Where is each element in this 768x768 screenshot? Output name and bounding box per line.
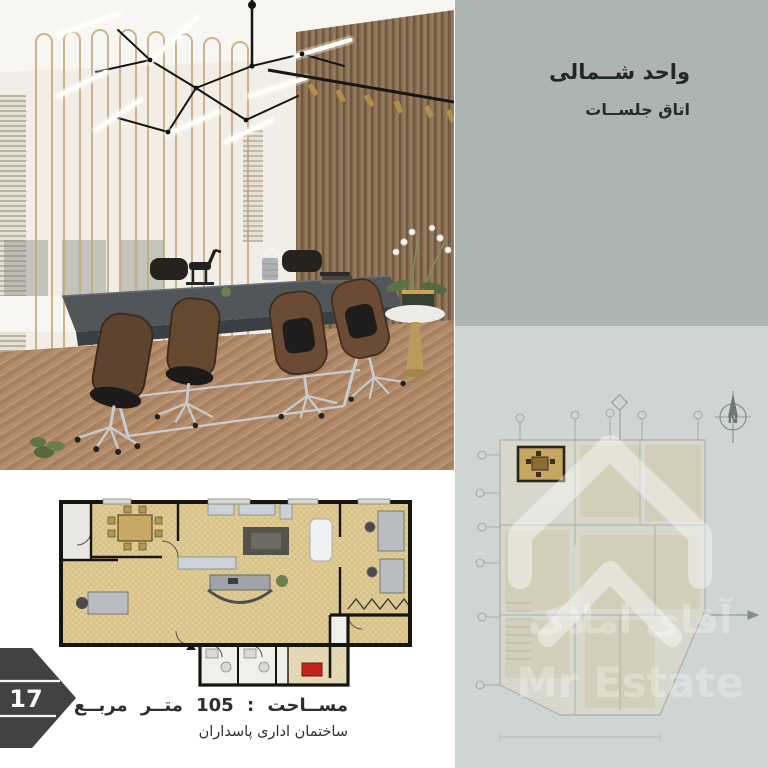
highlighted-meeting-room	[518, 447, 564, 481]
table-greenery	[221, 287, 231, 297]
building-floor-plan: N آقای املاک Mr Estate	[470, 385, 768, 768]
daybed	[310, 519, 332, 561]
compass-north-label: N	[728, 412, 739, 427]
vestibule-floor	[61, 502, 91, 560]
watermark-text-en: Mr Estate	[516, 658, 744, 707]
wall-art-panels	[4, 240, 164, 298]
building-caption: ساختمان اداری پاسداران	[70, 724, 348, 740]
chair-back-far-2	[282, 250, 322, 272]
axis-marker	[612, 395, 628, 440]
bench-sofa	[178, 557, 236, 569]
watermark-text-fa: آقای املاک	[528, 596, 734, 642]
page-number: 17	[9, 685, 42, 713]
room-subtitle: اتاق جلســات	[585, 100, 690, 119]
meeting-room-photo	[0, 0, 454, 470]
window-blinds-mid	[243, 130, 263, 242]
chair-back-far-1	[150, 258, 188, 280]
title-panel: واحد شــمالی اتاق جلســات	[455, 0, 768, 326]
caption-block: مســاحت : 105 متــر مربــع ساختمان اداری…	[70, 695, 348, 740]
area-caption: مســاحت : 105 متــر مربــع	[70, 695, 348, 716]
unit-title: واحد شــمالی	[549, 60, 690, 84]
north-compass-icon: N	[715, 391, 751, 443]
area-rug	[243, 527, 289, 555]
stove	[302, 663, 322, 676]
dimension-line	[500, 732, 660, 742]
presentation-slide: واحد شــمالی اتاق جلســات	[0, 0, 768, 768]
plant-symbol	[276, 575, 288, 587]
unit-floor-plan	[58, 497, 414, 693]
